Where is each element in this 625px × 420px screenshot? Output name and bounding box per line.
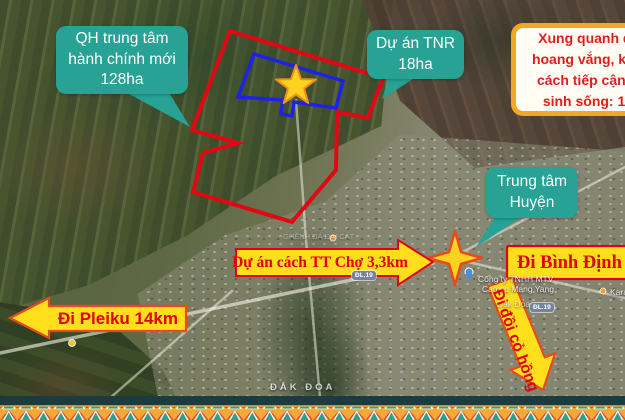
map-ad-screenshot: GHỀNH ĐÁ ĐẠI CÁT Công ty TNHH MTV Cao su… xyxy=(0,0,625,420)
binh-dinh-label: Đi Bình Định 16 xyxy=(517,249,625,277)
market-distance-label: Dự án cách TT Chợ 3,3km xyxy=(240,250,400,276)
callout-line: 18ha xyxy=(398,55,432,75)
road-shield-badge: ĐL.19 xyxy=(530,303,554,312)
info-line: hoang vắng, khoảng xyxy=(532,49,625,70)
map-label-poi: Kara xyxy=(610,287,625,297)
strip-triangles xyxy=(0,407,625,420)
strip-band xyxy=(0,396,625,406)
callout-line: Dự án TNR xyxy=(376,34,455,54)
callout-line: hành chính mới xyxy=(68,50,176,70)
map-pin-icon xyxy=(465,268,473,281)
surroundings-info-box: Xung quanh dự án hoang vắng, khoảng cách… xyxy=(511,23,625,116)
decorative-border-strip xyxy=(0,396,625,420)
info-line: Xung quanh dự án xyxy=(538,28,625,49)
map-label-district: ĐẮK ĐOA xyxy=(270,382,335,393)
callout-line: 128ha xyxy=(100,70,143,90)
pleiku-label: Đi Pleiku 14km xyxy=(52,307,184,331)
callout-qh-center: QH trung tâm hành chính mới 128ha xyxy=(56,26,188,94)
strip-gold-line xyxy=(0,405,625,406)
callout-line: QH trung tâm xyxy=(75,29,168,49)
poi-dot-icon xyxy=(69,340,76,347)
info-line: cách tiếp cận cộng xyxy=(537,70,625,91)
callout-tnr: Dự án TNR 18ha xyxy=(367,30,464,79)
red-boundary-polygon xyxy=(192,31,383,222)
callout-line: Trung tâm xyxy=(497,172,567,192)
district-center-sparkle-icon xyxy=(428,231,482,285)
callout-line: Huyện xyxy=(510,193,555,213)
callout-district-center: Trung tâm Huyện xyxy=(486,167,578,218)
poi-dot-icon xyxy=(600,288,606,294)
info-line: sinh sống: 1,3km xyxy=(543,91,625,112)
callout-tail xyxy=(476,214,523,247)
map-label-poi: GHỀNH ĐÁ ĐẠI CÁT xyxy=(283,232,354,241)
